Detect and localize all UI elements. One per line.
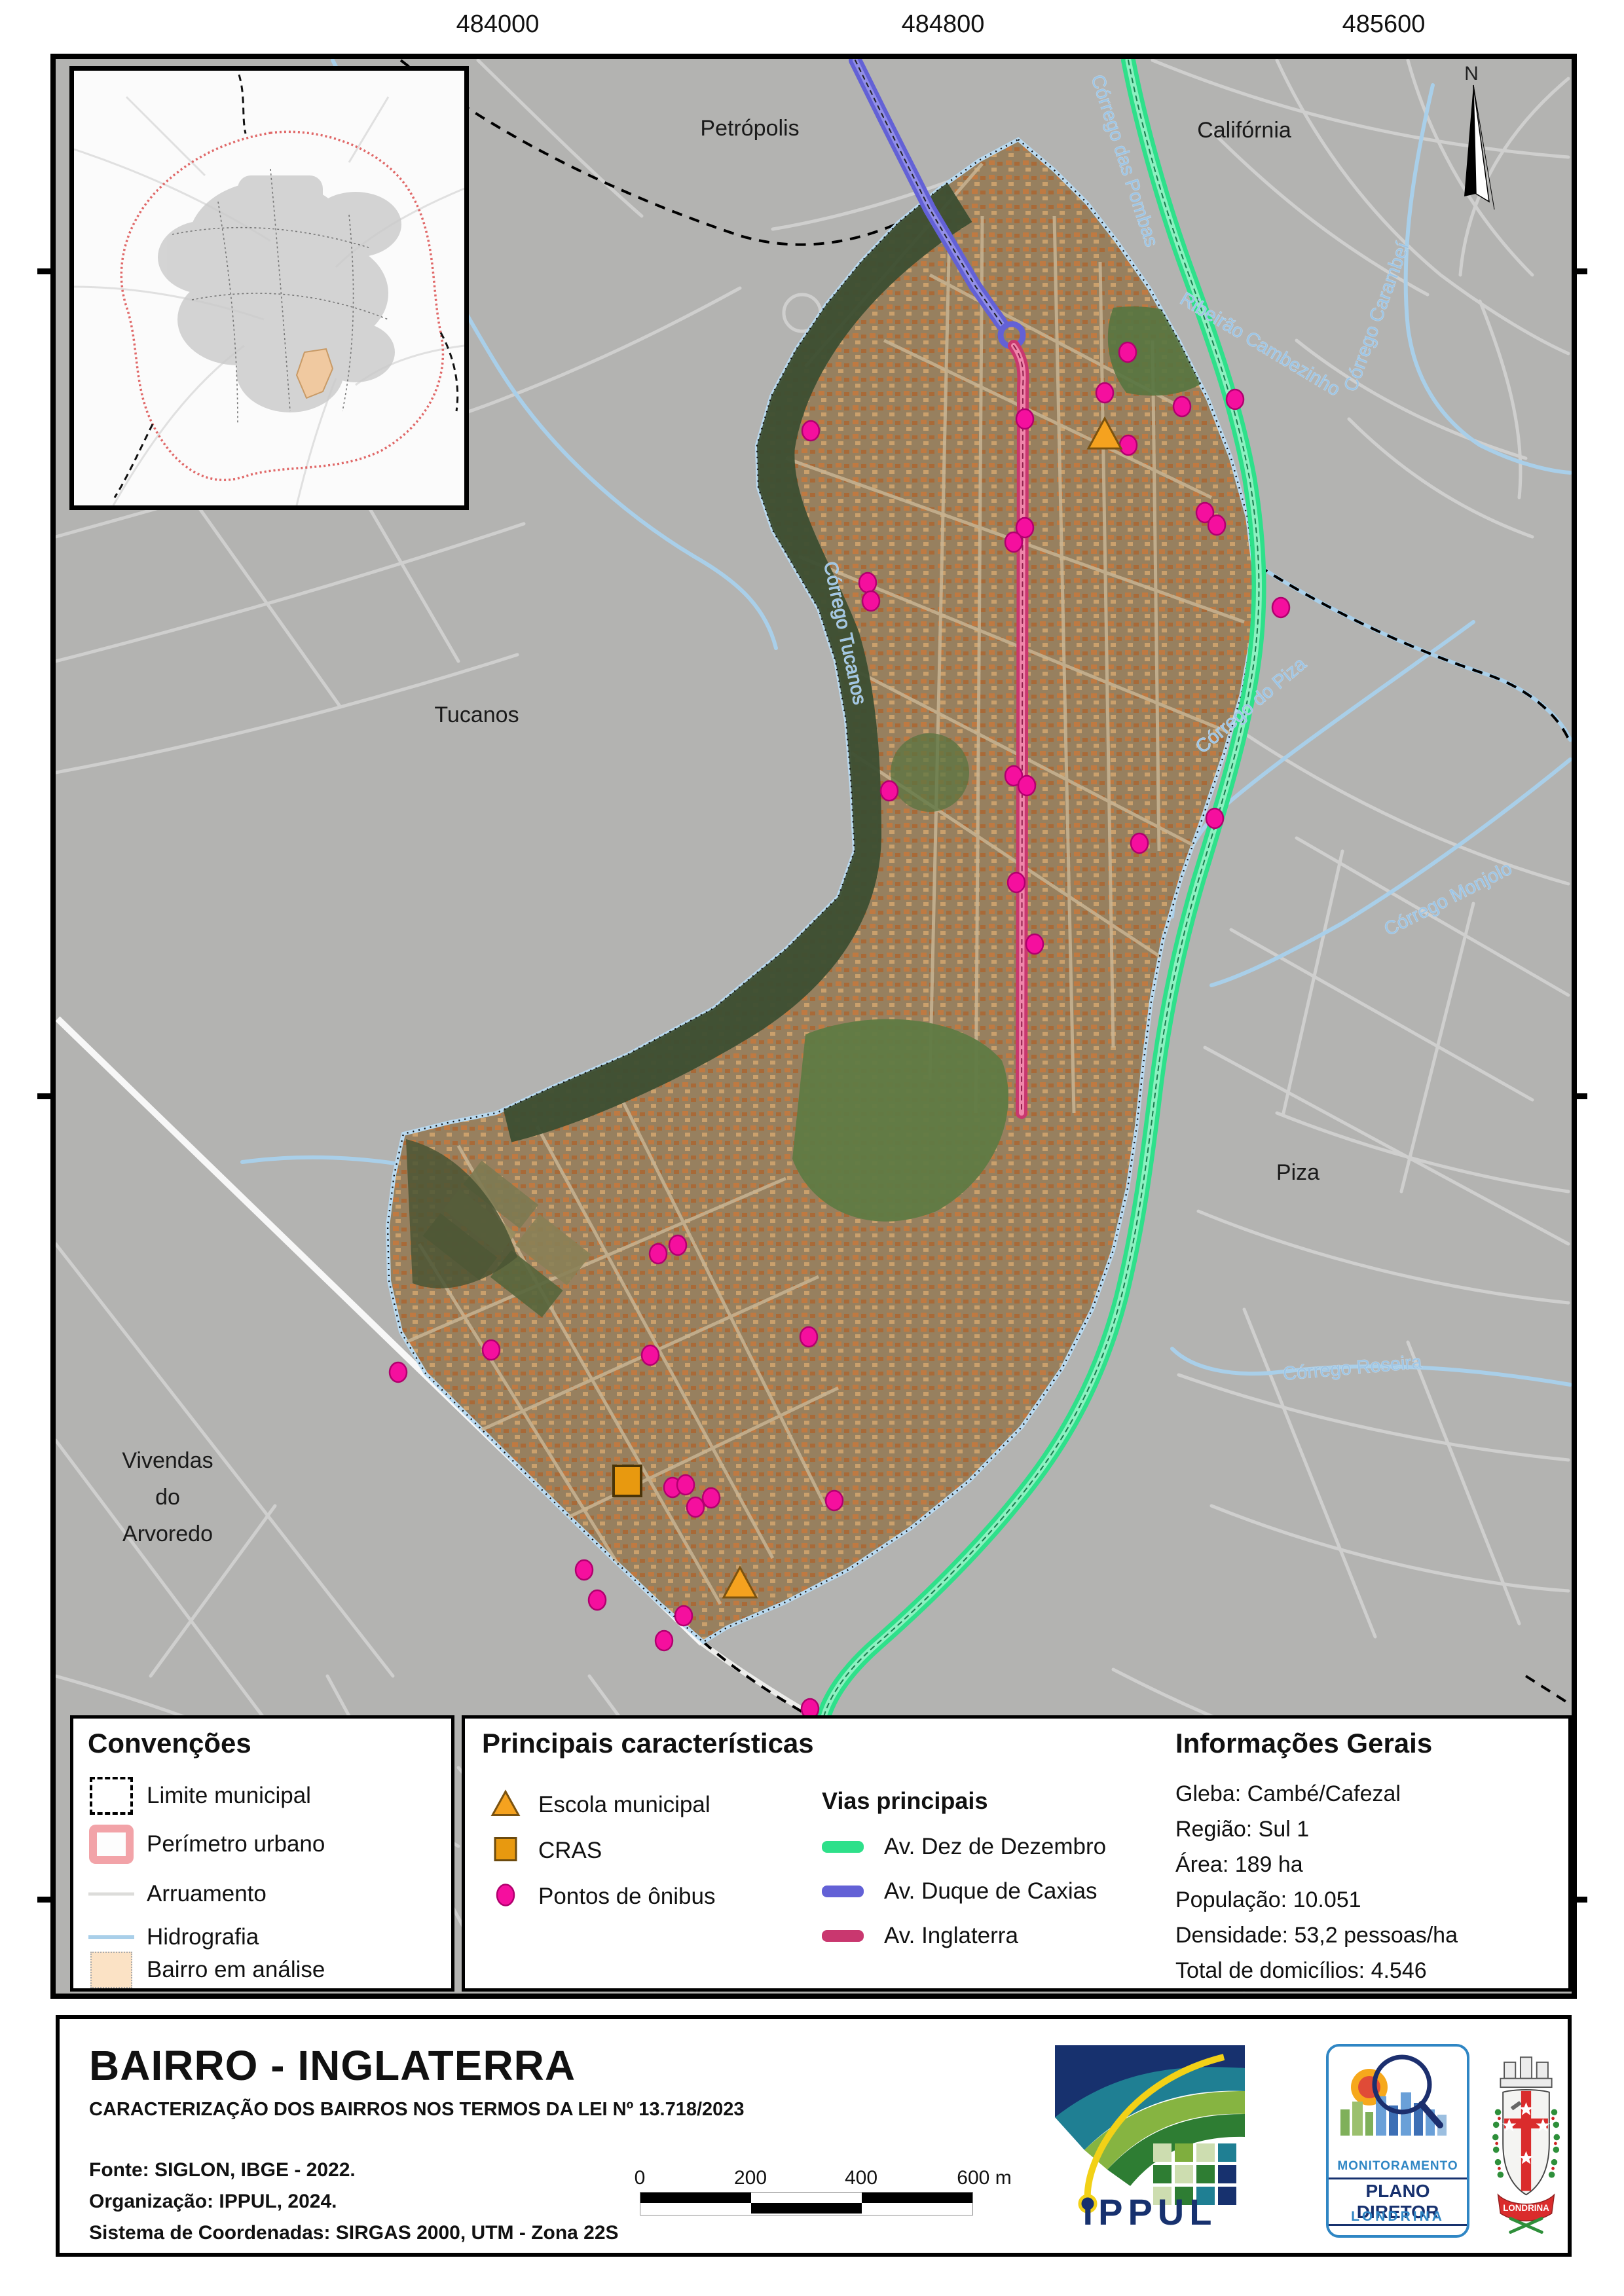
gray-line-swatch bbox=[88, 1893, 134, 1896]
legend-conventions: Convenções Limite municipal Perímetro ur… bbox=[70, 1715, 454, 1992]
label-piza: Piza bbox=[1276, 1160, 1319, 1185]
bus-stop-marker bbox=[576, 1560, 593, 1580]
legend-item-escola: Escola municipal bbox=[538, 1792, 710, 1818]
title-block: BAIRRO - INGLATERRA CARACTERIZAÇÃO DOS B… bbox=[56, 2015, 1572, 2257]
legend-item-bairro-em-analise: Bairro em análise bbox=[147, 1957, 325, 1983]
legend-characteristics-title: Principais características bbox=[482, 1728, 814, 1759]
info-gleba: Gleba: Cambé/Cafezal bbox=[1175, 1781, 1401, 1807]
inset-locator-map bbox=[69, 66, 469, 510]
bus-stop-marker bbox=[1272, 598, 1289, 617]
info-regiao: Região: Sul 1 bbox=[1175, 1817, 1309, 1842]
info-populacao: População: 10.051 bbox=[1175, 1887, 1361, 1913]
londrina-coat-of-arms: LONDRINA bbox=[1492, 2047, 1560, 2240]
legend-item-av-duque: Av. Duque de Caxias bbox=[884, 1878, 1098, 1904]
blue-line-swatch bbox=[88, 1935, 134, 1939]
legend-item-limite-municipal: Limite municipal bbox=[147, 1783, 311, 1809]
bus-stop-marker bbox=[1096, 383, 1113, 403]
info-densidade: Densidade: 53,2 pessoas/ha bbox=[1175, 1923, 1458, 1948]
bus-stop-marker bbox=[802, 421, 819, 441]
northing-label-1: 7419000 bbox=[1581, 271, 1624, 299]
scalebar-label-200: 200 bbox=[734, 2167, 767, 2189]
legend-item-pontos-onibus: Pontos de ônibus bbox=[538, 1884, 715, 1910]
legend-item-perimetro-urbano: Perímetro urbano bbox=[147, 1831, 325, 1857]
coordinate-system-line: Sistema de Coordenadas: SIRGAS 2000, UTM… bbox=[89, 2222, 619, 2244]
bus-stop-marker bbox=[687, 1497, 704, 1517]
bus-stop-marker bbox=[1120, 435, 1137, 455]
bus-stop-marker bbox=[655, 1631, 673, 1650]
bus-stop-marker bbox=[1131, 833, 1148, 853]
plano-diretor-art bbox=[1329, 2047, 1467, 2151]
easting-label-1: 484000 bbox=[456, 10, 540, 39]
magenta-dot-icon bbox=[494, 1882, 517, 1912]
info-gerais-title: Informações Gerais bbox=[1175, 1728, 1432, 1759]
legend-item-av-dez: Av. Dez de Dezembro bbox=[884, 1834, 1106, 1860]
svg-text:Vivendas: Vivendas bbox=[122, 1448, 213, 1473]
bus-stop-marker bbox=[642, 1345, 659, 1365]
bus-stop-marker bbox=[1026, 934, 1043, 954]
bus-stop-marker bbox=[826, 1491, 843, 1510]
legend-item-arruamento: Arruamento bbox=[147, 1881, 267, 1907]
bus-stop-marker bbox=[1227, 390, 1244, 409]
bus-stop-marker bbox=[650, 1244, 667, 1264]
bus-stop-marker bbox=[589, 1590, 606, 1610]
orange-triangle-icon bbox=[490, 1790, 521, 1821]
bus-stop-marker bbox=[703, 1488, 720, 1508]
source-line: Fonte: SIGLON, IBGE - 2022. bbox=[89, 2159, 356, 2181]
page-subtitle: CARACTERIZAÇÃO DOS BAIRROS NOS TERMOS DA… bbox=[89, 2099, 745, 2121]
scalebar-label-600: 600 m bbox=[957, 2167, 1011, 2189]
easting-label-3: 485600 bbox=[1342, 10, 1426, 39]
bus-stop-marker bbox=[881, 781, 898, 801]
svg-text:Arvoredo: Arvoredo bbox=[122, 1522, 213, 1546]
legend-item-cras: CRAS bbox=[538, 1838, 602, 1864]
via-inglaterra-swatch bbox=[822, 1930, 864, 1942]
label-petropolis: Petrópolis bbox=[700, 116, 799, 141]
info-domicilios: Total de domicílios: 4.546 bbox=[1175, 1958, 1427, 1984]
bus-stop-marker bbox=[669, 1235, 686, 1255]
northing-label-3: 7416000 bbox=[1581, 1899, 1624, 1927]
scale-bar bbox=[640, 2192, 973, 2215]
bus-stop-marker bbox=[1119, 342, 1136, 362]
scalebar-label-400: 400 bbox=[845, 2167, 877, 2189]
via-duque-de-caxias-swatch bbox=[822, 1886, 864, 1897]
svg-text:do: do bbox=[155, 1485, 180, 1510]
page-title: BAIRRO - INGLATERRA bbox=[89, 2041, 576, 2090]
bus-stop-marker bbox=[675, 1606, 692, 1626]
bus-stop-marker bbox=[1173, 397, 1190, 416]
ippul-logo-text: IPPUL bbox=[1055, 2191, 1245, 2233]
plano-diretor-logo: MONITORAMENTO PLANO DIRETOR LONDRINA bbox=[1326, 2044, 1469, 2238]
bus-stop-marker bbox=[859, 573, 876, 592]
northing-label-2: 7417500 bbox=[1581, 1096, 1624, 1124]
via-dez-de-dezembro-swatch bbox=[822, 1841, 864, 1853]
bus-stop-marker bbox=[1005, 532, 1022, 552]
plano-diretor-line1: MONITORAMENTO bbox=[1329, 2159, 1467, 2174]
scalebar-label-0: 0 bbox=[635, 2167, 646, 2189]
organization-line: Organização: IPPUL, 2024. bbox=[89, 2191, 337, 2213]
legend-item-hidrografia: Hidrografia bbox=[147, 1924, 259, 1950]
bus-stop-marker bbox=[1018, 776, 1035, 795]
label-california: Califórnia bbox=[1197, 118, 1291, 143]
bus-stop-marker bbox=[862, 591, 879, 611]
map-sheet: 484000 484800 485600 7419000 7417500 741… bbox=[0, 0, 1624, 2296]
brasao-ribbon-text: LONDRINA bbox=[1503, 2203, 1549, 2213]
legend-item-av-inglaterra: Av. Inglaterra bbox=[884, 1923, 1018, 1949]
bus-stop-marker bbox=[1008, 873, 1025, 892]
bus-stop-marker bbox=[677, 1475, 694, 1495]
easting-label-2: 484800 bbox=[902, 10, 985, 39]
info-area: Área: 189 ha bbox=[1175, 1852, 1303, 1878]
plano-diretor-line3: LONDRINA bbox=[1329, 2209, 1467, 2225]
bus-stop-marker bbox=[390, 1362, 407, 1382]
main-map: Petrópolis Califórnia Tucanos Piza Viven… bbox=[50, 54, 1577, 1999]
cras-marker bbox=[614, 1466, 641, 1496]
peach-fill-swatch bbox=[90, 1952, 132, 1988]
bus-stop-marker bbox=[1016, 409, 1033, 429]
orange-square-icon bbox=[493, 1836, 518, 1866]
bus-stop-marker bbox=[800, 1327, 817, 1347]
svg-text:N: N bbox=[1464, 63, 1479, 84]
cras-layer bbox=[614, 1466, 641, 1496]
bus-stop-marker bbox=[483, 1340, 500, 1360]
legend-conventions-title: Convenções bbox=[88, 1728, 251, 1759]
dashed-square-swatch bbox=[90, 1777, 133, 1815]
bus-stop-marker bbox=[1208, 515, 1225, 535]
vias-principais-title: Vias principais bbox=[822, 1787, 987, 1815]
pink-border-square-swatch bbox=[89, 1825, 134, 1864]
legend-characteristics: Principais características Escola munici… bbox=[462, 1715, 1572, 1992]
label-tucanos: Tucanos bbox=[434, 702, 519, 727]
bus-stop-marker bbox=[1206, 809, 1223, 828]
